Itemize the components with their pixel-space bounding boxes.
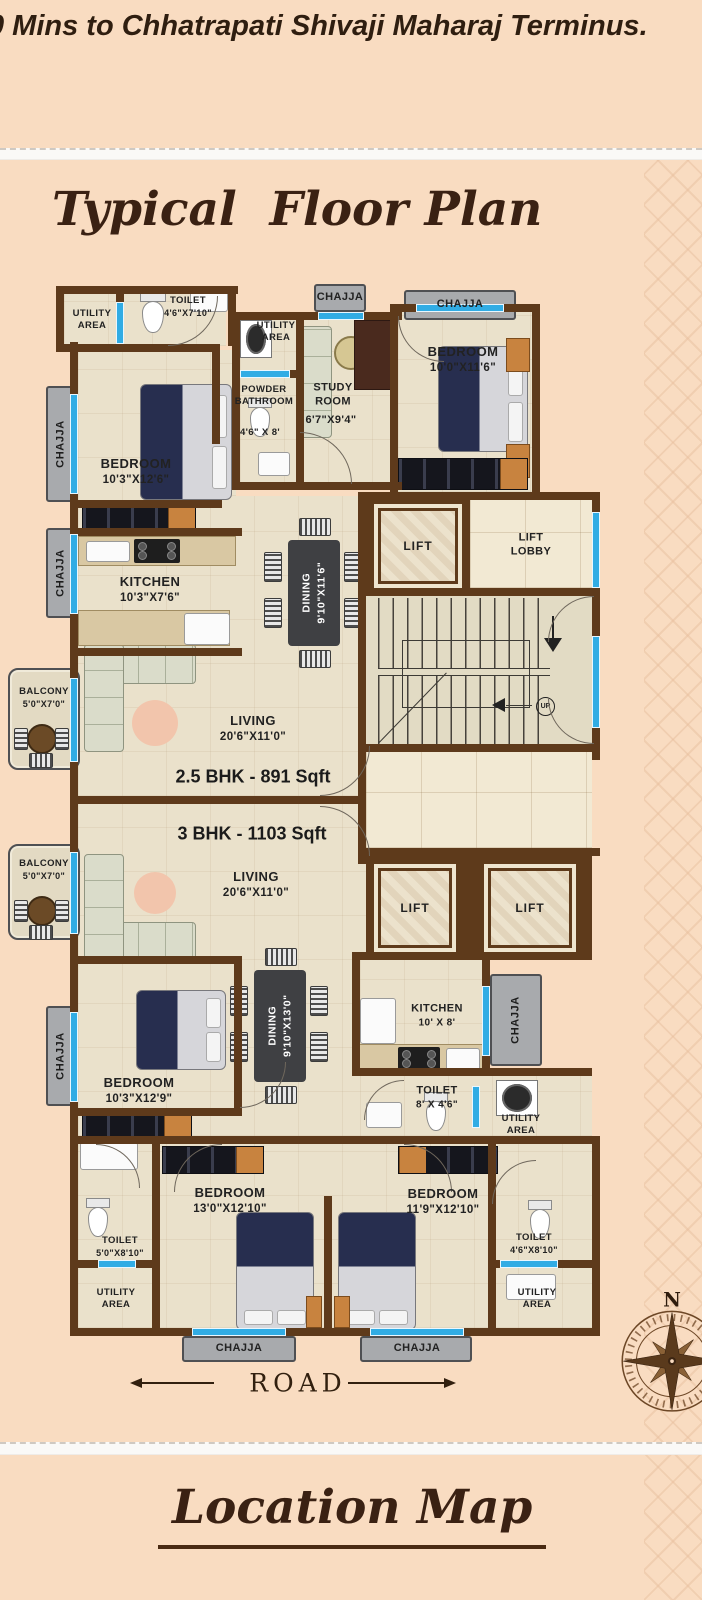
room-label-toilet-bl: TOILET5'0"X8'10" [96, 1235, 144, 1259]
window [370, 1328, 464, 1336]
washing-machine [496, 1080, 538, 1116]
wall [70, 796, 366, 804]
nightstand [334, 1296, 350, 1328]
chair [265, 948, 297, 966]
wall [70, 1108, 242, 1116]
dining-label: DINING [299, 562, 314, 624]
fridge [184, 613, 230, 645]
chair [14, 900, 28, 922]
wall [532, 304, 540, 500]
window [318, 312, 364, 320]
room-label-bedroom-tl: BEDROOM10'3"X12'6" [101, 456, 172, 488]
wall [358, 492, 600, 500]
wall [352, 952, 592, 960]
sofa [84, 644, 124, 752]
wardrobe [398, 458, 528, 490]
bed [136, 990, 226, 1070]
sink-unit [360, 998, 396, 1044]
window [500, 1260, 558, 1268]
room-label-utility-3m: UTILITY AREA [492, 1113, 550, 1137]
room-label-bedroom-b2: BEDROOM11'9"X12'10" [407, 1186, 480, 1218]
floor [366, 752, 592, 848]
wall [462, 496, 470, 596]
dining-table: DINING9'10"X11'6" [288, 540, 340, 646]
bed [236, 1212, 314, 1330]
sink [86, 541, 130, 562]
lift-box: LIFT [366, 496, 470, 596]
window [70, 534, 78, 614]
wall [232, 312, 402, 320]
wall [358, 744, 600, 752]
room-label-toilet-br: TOILET4'6"X8'10" [510, 1232, 558, 1256]
room-label-living-3: LIVING20'6"X11'0" [223, 869, 289, 901]
nightstand [306, 1296, 322, 1328]
lift-label: LIFT [515, 901, 544, 915]
rug [134, 872, 176, 914]
room-label-bedroom-3l: BEDROOM10'3"X12'9" [104, 1075, 175, 1107]
room-label-toilet-tl: TOILET4'6"X7'10" [164, 295, 212, 319]
wall [358, 848, 600, 856]
room-size-study: 6'7"X9'4" [305, 414, 356, 428]
dining-size: 9'10"X13'0" [280, 995, 295, 1058]
wall [212, 344, 220, 444]
room-label-utility-br: UTILITY AREA [508, 1287, 566, 1311]
bhk3-label: 3 BHK - 1103 Sqft [177, 824, 326, 845]
right-arrow-icon [444, 1378, 456, 1388]
road-arrow-line [142, 1382, 214, 1384]
chair [29, 753, 53, 768]
room-label-toilet-3m: TOILET8' X 4'6" [416, 1084, 458, 1111]
window [70, 394, 78, 494]
room-label-living-25: LIVING20'6"X11'0" [220, 713, 286, 745]
divider-band [0, 148, 702, 160]
chajja-label: CHAJJA [511, 996, 522, 1044]
window [70, 1012, 78, 1102]
wall [358, 492, 366, 864]
room-label-bedroom-tr: BEDROOM10'0"X11'6" [428, 344, 499, 376]
dining-label: DINING [265, 995, 280, 1058]
window [592, 636, 600, 728]
chajja-label: CHAJJA [437, 298, 483, 312]
chair [310, 986, 328, 1016]
location-map-title: Location Map [158, 1480, 546, 1549]
chajja-label: CHAJJA [56, 549, 67, 597]
chair [29, 925, 53, 940]
wall [324, 1196, 332, 1336]
sink [258, 452, 290, 476]
wall [464, 856, 476, 960]
wall [352, 1068, 592, 1076]
chajja-label: CHAJJA [394, 1342, 440, 1356]
room-label-balcony-2: BALCONY5'0"X7'0" [19, 858, 69, 882]
bhk25-label: 2.5 BHK - 891 Sqft [175, 767, 330, 788]
wall [56, 344, 216, 352]
room-label-powder: POWDER BATHROOM [225, 384, 303, 408]
brochure-page: 0 Mins to Chhatrapati Shivaji Maharaj Te… [0, 0, 702, 1600]
chair [14, 728, 28, 750]
lift-lobby-label: LIFT LOBBY [499, 531, 563, 559]
wall [56, 286, 238, 294]
window [472, 1086, 480, 1128]
wall [584, 856, 592, 960]
window [482, 986, 490, 1056]
headline: 0 Mins to Chhatrapati Shivaji Maharaj Te… [0, 10, 648, 43]
road-label: ROAD [249, 1369, 346, 1398]
room-label-bedroom-b1: BEDROOM13'0"X12'10" [193, 1185, 267, 1217]
window [192, 1328, 286, 1336]
room-label-utility-tl: UTILITY AREA [63, 308, 121, 332]
dining-size: 9'10"X11'6" [314, 562, 329, 624]
lift-box: LIFT [476, 856, 584, 960]
lift-label: LIFT [403, 539, 432, 553]
left-arrow-icon [130, 1378, 142, 1388]
chair [299, 518, 331, 536]
chair [55, 900, 69, 922]
road-arrow-line [348, 1382, 444, 1384]
chair [299, 650, 331, 668]
window [98, 1260, 136, 1268]
chajja-label: CHAJJA [56, 420, 67, 468]
wall [358, 588, 600, 596]
wall [70, 500, 222, 508]
lift-label: LIFT [400, 901, 429, 915]
wall [152, 1136, 160, 1336]
lift-box: LIFT [366, 856, 464, 960]
chajja-label: CHAJJA [216, 1342, 262, 1356]
chair [55, 728, 69, 750]
room-label-kitchen-3: KITCHEN10' X 8' [411, 1002, 463, 1029]
chair [264, 552, 282, 582]
stove [134, 539, 180, 563]
floor-plan-title: Typical Floor Plan [52, 182, 542, 237]
wall [488, 1136, 496, 1336]
divider-band [0, 1442, 702, 1455]
window [240, 370, 290, 378]
rug [132, 700, 178, 746]
balcony-table [27, 724, 57, 754]
sofa [84, 854, 124, 962]
side-table [506, 338, 530, 372]
room-size-powder: 4'6" X 8' [240, 427, 280, 439]
wall [592, 1136, 600, 1336]
chajja-label: CHAJJA [56, 1032, 67, 1080]
chair [310, 1032, 328, 1062]
window [592, 512, 600, 588]
chair [264, 598, 282, 628]
north-label: N [663, 1288, 681, 1311]
wall [352, 952, 360, 1076]
room-label-utility-bl: UTILITY AREA [87, 1287, 145, 1311]
wall [70, 528, 242, 536]
room-label-utility-2: UTILITY AREA [247, 320, 305, 344]
room-label-study: STUDY ROOM [304, 381, 362, 409]
window [70, 852, 78, 934]
wall [70, 1328, 600, 1336]
arrow-stem [506, 705, 532, 706]
wall [390, 304, 398, 496]
room-label-balcony-1: BALCONY5'0"X7'0" [19, 686, 69, 710]
left-arrow-icon [492, 698, 505, 712]
wall [70, 648, 242, 656]
chajja-label: CHAJJA [317, 291, 363, 305]
compass-rose-icon: N [606, 1286, 702, 1418]
balcony-table [27, 896, 57, 926]
room-label-kitchen-25: KITCHEN10'3"X7'6" [120, 574, 181, 606]
wall [70, 956, 242, 964]
window [70, 678, 78, 762]
wall [70, 1136, 600, 1144]
